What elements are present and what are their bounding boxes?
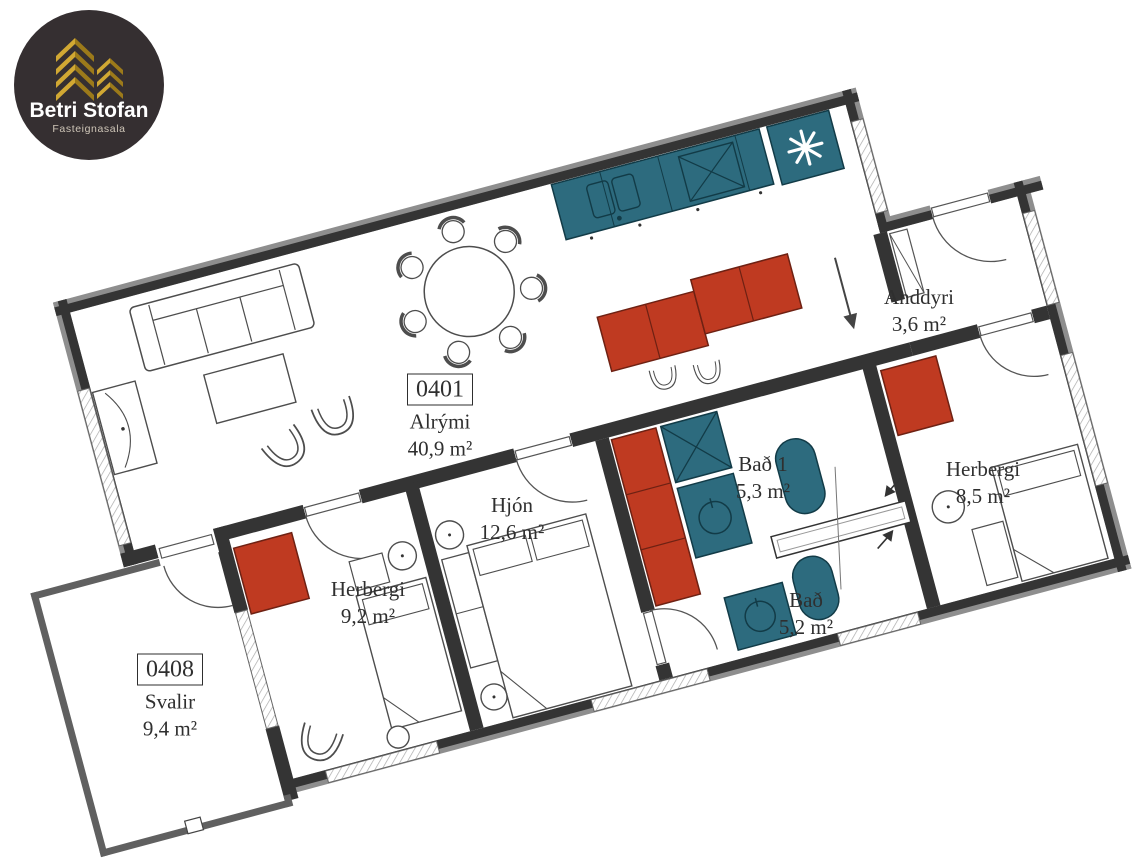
balcony-drain (185, 817, 204, 834)
side-table (385, 724, 412, 751)
room-area: 12,6 m² (480, 520, 545, 544)
logo-title: Betri Stofan (29, 100, 148, 122)
floor-plan-canvas: Betri Stofan Fasteignasala 0401 Alrými 4… (0, 0, 1145, 867)
logo-subtitle: Fasteignasala (52, 122, 125, 136)
logo-buildings-icon (14, 10, 164, 102)
coffee-table (204, 354, 296, 424)
bar-stool (693, 360, 723, 386)
bar-stool (649, 365, 679, 391)
dining-table (375, 198, 563, 383)
room-label-bad1: Bað 1 5,3 m² (736, 451, 790, 505)
room-name: Herbergi (331, 577, 405, 601)
room-area: 40,9 m² (408, 437, 473, 461)
unit-number-0408: 0408 (137, 654, 203, 686)
armchair (262, 424, 314, 474)
room-label-bad: Bað 5,2 m² (779, 587, 833, 641)
armchair (295, 723, 343, 766)
shower (661, 412, 732, 483)
room-label-alrymi: 0401 Alrými 40,9 m² (407, 374, 473, 463)
room-label-hjon: Hjón 12,6 m² (480, 492, 545, 546)
room-name: Hjón (491, 493, 533, 517)
room-area: 9,4 m² (143, 717, 197, 741)
room-area: 5,3 m² (736, 479, 790, 503)
room-area: 8,5 m² (956, 484, 1010, 508)
logo-betri-stofan: Betri Stofan Fasteignasala (14, 10, 164, 160)
room-label-herbergi-85: Herbergi 8,5 m² (946, 456, 1020, 510)
room-name: Svalir (145, 690, 195, 714)
armchair (311, 396, 360, 440)
room-name: Bað (789, 588, 823, 612)
room-name: Herbergi (946, 457, 1020, 481)
room-name: Alrými (410, 410, 471, 434)
entry-arrow (828, 256, 861, 331)
room-area: 9,2 m² (341, 604, 395, 628)
room-name: Bað 1 (738, 452, 788, 476)
floor-plan (0, 40, 1145, 867)
room-area: 3,6 m² (892, 312, 946, 336)
room-label-svalir: 0408 Svalir 9,4 m² (137, 654, 203, 743)
room-label-herbergi-92: Herbergi 9,2 m² (331, 576, 405, 630)
room-name: Anddyri (884, 285, 954, 309)
room-area: 5,2 m² (779, 615, 833, 639)
unit-number-0401: 0401 (407, 374, 473, 406)
room-label-anddyri: Anddyri 3,6 m² (884, 284, 954, 338)
